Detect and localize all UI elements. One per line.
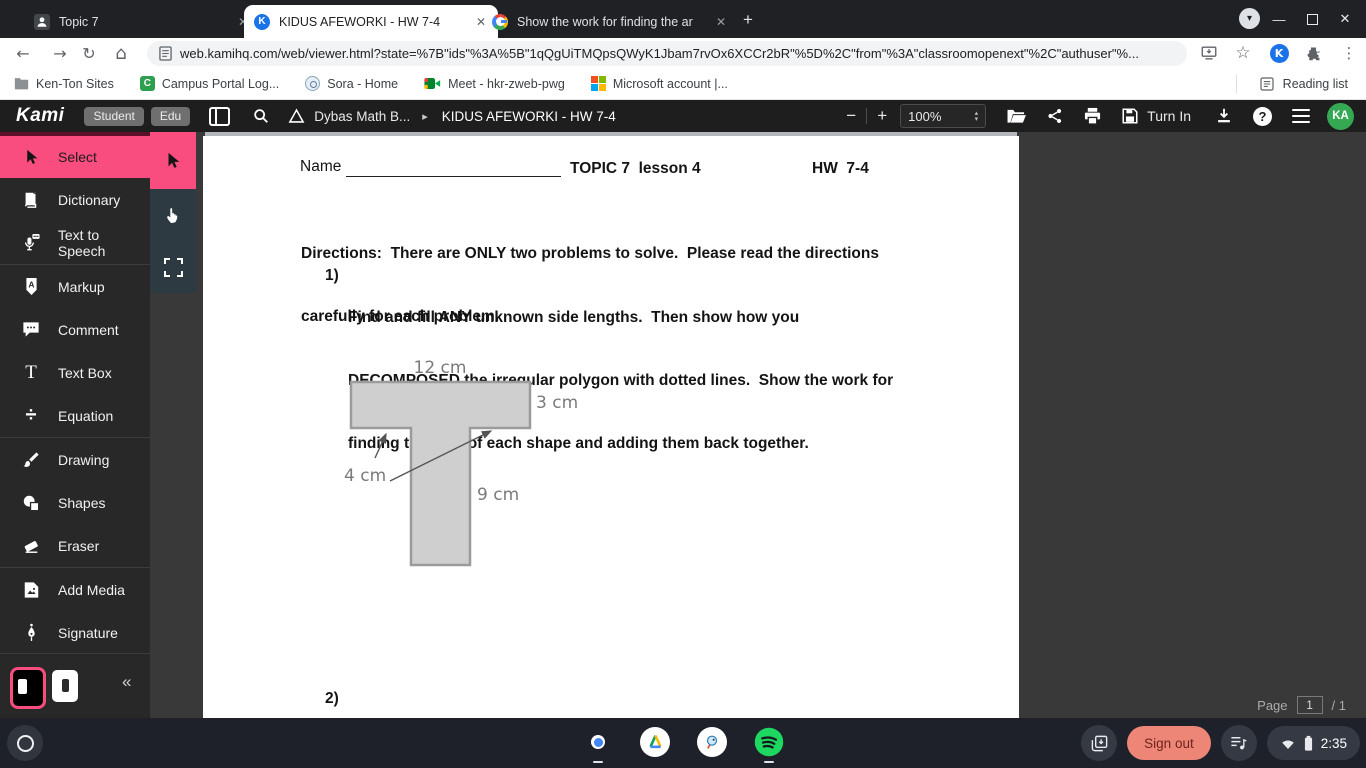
close-tab-icon[interactable]: ✕ bbox=[714, 15, 728, 29]
account-avatar[interactable]: KA bbox=[1327, 103, 1354, 130]
extensions-puzzle-icon[interactable] bbox=[1300, 40, 1326, 66]
edu-badge: Edu bbox=[151, 107, 190, 126]
page-total: / 1 bbox=[1332, 698, 1346, 713]
document-title: KIDUS AFEWORKI - HW 7-4 bbox=[442, 109, 616, 124]
shapes-icon bbox=[20, 494, 42, 512]
text-box-icon: T bbox=[20, 362, 42, 384]
comment-icon bbox=[20, 321, 42, 338]
svg-text:A: A bbox=[28, 279, 34, 289]
search-icon bbox=[252, 107, 270, 125]
tab-title: KIDUS AFEWORKI - HW 7-4 bbox=[279, 15, 465, 29]
spotify-icon bbox=[754, 727, 784, 757]
save-icon bbox=[1121, 107, 1139, 125]
signature-icon bbox=[20, 623, 42, 642]
bookmarks-bar: Ken-Ton Sites C Campus Portal Log... Sor… bbox=[0, 68, 1366, 100]
tool-drawing[interactable]: Drawing bbox=[0, 437, 150, 481]
open-file-button[interactable] bbox=[1006, 108, 1027, 125]
download-button[interactable] bbox=[1215, 107, 1233, 125]
tool-equation[interactable]: ÷ Equation bbox=[0, 394, 150, 437]
folder-open-icon bbox=[1006, 108, 1027, 125]
kami-extension-icon[interactable]: K bbox=[1266, 40, 1292, 66]
close-window-button[interactable]: ✕ bbox=[1334, 9, 1356, 29]
forward-button[interactable]: → bbox=[47, 40, 73, 66]
print-icon bbox=[1083, 107, 1102, 125]
brush-icon bbox=[20, 451, 42, 469]
bookmark-star-icon[interactable]: ☆ bbox=[1230, 40, 1256, 66]
tab-kidus-afeworki[interactable]: K KIDUS AFEWORKI - HW 7-4 ✕ bbox=[244, 5, 498, 38]
sidebar-footer: « bbox=[0, 653, 150, 718]
student-badge: Student bbox=[84, 107, 143, 126]
hw-heading: HW 7-4 bbox=[812, 158, 869, 179]
running-indicator bbox=[764, 761, 774, 764]
viewer-area: Name TOPIC 7 lesson 4 HW 7-4 Directions:… bbox=[0, 136, 1366, 718]
subtool-pan-hand[interactable] bbox=[150, 189, 196, 241]
light-theme-swatch[interactable] bbox=[52, 670, 78, 702]
cursor-icon bbox=[20, 148, 42, 167]
eraser-icon bbox=[20, 537, 42, 554]
hand-icon bbox=[164, 205, 182, 225]
zoom-level-select[interactable]: 100% ▴▾ bbox=[900, 104, 986, 128]
address-bar[interactable]: web.kamihq.com/web/viewer.html?state=%7B… bbox=[147, 41, 1187, 66]
menu-icon bbox=[1292, 109, 1310, 123]
screen-capture-button[interactable] bbox=[1081, 725, 1117, 761]
shelf-mascot-app[interactable] bbox=[697, 727, 727, 757]
zoom-out-button[interactable]: − bbox=[846, 106, 856, 126]
problem-2-number: 2) bbox=[325, 688, 339, 709]
shelf-spotify-app[interactable] bbox=[754, 727, 784, 757]
download-icon bbox=[1215, 107, 1233, 125]
problem-2-text: Show the work for finding the area of ea… bbox=[348, 688, 898, 718]
tool-add-media[interactable]: Add Media bbox=[0, 567, 150, 611]
dim-stem-label: 9 cm bbox=[477, 485, 519, 505]
browser-menu-icon[interactable]: ⋮ bbox=[1336, 40, 1362, 66]
battery-icon bbox=[1303, 735, 1314, 752]
tool-select[interactable]: Select bbox=[0, 136, 150, 178]
select-tool-flyout bbox=[150, 132, 196, 293]
tool-text-box[interactable]: T Text Box bbox=[0, 351, 150, 394]
dim-left-label: 4 cm bbox=[344, 466, 386, 486]
subtool-arrow[interactable] bbox=[150, 132, 196, 189]
kami-favicon-icon: K bbox=[254, 14, 270, 30]
tab-search-button[interactable]: ▾ bbox=[1239, 8, 1260, 29]
kami-menu-button[interactable] bbox=[1292, 109, 1310, 123]
add-media-icon bbox=[20, 581, 42, 599]
divider bbox=[866, 108, 867, 124]
maximize-button[interactable] bbox=[1301, 9, 1323, 29]
help-button[interactable]: ? bbox=[1253, 107, 1272, 126]
kami-logo[interactable]: Kami bbox=[16, 105, 64, 127]
stepper-icon: ▴▾ bbox=[975, 110, 979, 122]
zoom-in-button[interactable]: + bbox=[877, 106, 887, 126]
page-icon bbox=[159, 46, 172, 61]
wifi-icon bbox=[1280, 736, 1296, 750]
bookmark-sora[interactable]: Sora - Home bbox=[305, 76, 398, 91]
kami-toolbar: Kami Student Edu Dybas Math B... ▸ KIDUS… bbox=[0, 100, 1366, 132]
shelf-chrome-app[interactable] bbox=[583, 727, 613, 757]
tool-dictionary[interactable]: Dictionary bbox=[0, 178, 150, 221]
home-button[interactable]: ⌂ bbox=[108, 40, 134, 66]
help-icon: ? bbox=[1253, 107, 1272, 126]
shelf-drive-app[interactable] bbox=[640, 727, 670, 757]
folder-icon bbox=[14, 77, 29, 90]
chromeos-shelf: Sign out 2:35 bbox=[0, 718, 1366, 768]
drive-icon bbox=[288, 108, 305, 124]
caret-down-icon: ▾ bbox=[1247, 13, 1252, 24]
tab-title: Show the work for finding the ar bbox=[517, 15, 705, 29]
sign-out-button[interactable]: Sign out bbox=[1127, 726, 1211, 760]
breadcrumb-arrow-icon: ▸ bbox=[422, 110, 428, 123]
book-icon bbox=[20, 191, 42, 209]
tool-eraser[interactable]: Eraser bbox=[0, 524, 150, 567]
bookmark-campus-portal[interactable]: C Campus Portal Log... bbox=[140, 76, 279, 91]
shelf-apps bbox=[583, 727, 784, 757]
meet-icon bbox=[424, 77, 441, 90]
page-label: Page bbox=[1257, 698, 1287, 713]
chromeos-screen: Topic 7 ✕ K KIDUS AFEWORKI - HW 7-4 ✕ Sh… bbox=[0, 0, 1366, 768]
split-view-icon bbox=[209, 107, 230, 126]
clock: 2:35 bbox=[1321, 736, 1347, 751]
tool-markup[interactable]: A Markup bbox=[0, 264, 150, 308]
print-button[interactable] bbox=[1083, 107, 1102, 125]
launcher-button[interactable] bbox=[7, 725, 43, 761]
url-text: web.kamihq.com/web/viewer.html?state=%7B… bbox=[180, 46, 1175, 61]
new-tab-button[interactable]: + bbox=[736, 8, 760, 32]
search-button[interactable] bbox=[252, 107, 270, 125]
browser-toolbar: ← → ↻ ⌂ web.kamihq.com/web/viewer.html?s… bbox=[0, 38, 1366, 68]
tool-comment[interactable]: Comment bbox=[0, 308, 150, 351]
drive-app-icon bbox=[640, 727, 670, 757]
tool-text-to-speech[interactable]: Text to Speech bbox=[0, 221, 150, 264]
tab-title: Topic 7 bbox=[59, 15, 227, 29]
breadcrumb[interactable]: Dybas Math B... bbox=[314, 109, 410, 124]
collapse-sidebar-button[interactable]: « bbox=[122, 672, 131, 692]
sora-icon bbox=[305, 76, 320, 91]
running-indicator bbox=[593, 761, 603, 764]
reading-list-icon bbox=[1259, 76, 1275, 92]
zoom-value: 100% bbox=[908, 109, 941, 124]
tab-strip: Topic 7 ✕ K KIDUS AFEWORKI - HW 7-4 ✕ Sh… bbox=[0, 0, 1366, 38]
dark-theme-swatch[interactable] bbox=[10, 667, 46, 709]
bookmark-microsoft[interactable]: Microsoft account |... bbox=[591, 76, 728, 91]
problem-1-number: 1) bbox=[325, 265, 339, 286]
dim-top-label: 12 cm bbox=[404, 358, 476, 378]
reload-button[interactable]: ↻ bbox=[76, 40, 102, 66]
kami-tool-sidebar: Select Dictionary Text to Speech A Marku… bbox=[0, 136, 150, 718]
tool-shapes[interactable]: Shapes bbox=[0, 481, 150, 524]
reading-list-button[interactable]: Reading list bbox=[1236, 75, 1366, 93]
launcher-icon bbox=[17, 735, 34, 752]
maximize-icon bbox=[1307, 14, 1318, 25]
name-label: Name bbox=[300, 158, 341, 176]
bookmark-ken-ton-sites[interactable]: Ken-Ton Sites bbox=[14, 77, 114, 91]
shelf-status-cluster: Sign out 2:35 bbox=[1081, 725, 1360, 761]
dim-right-label: 3 cm bbox=[536, 393, 578, 413]
google-favicon-icon bbox=[492, 14, 508, 30]
campus-portal-icon: C bbox=[140, 76, 155, 91]
bookmark-meet[interactable]: Meet - hkr-zweb-pwg bbox=[424, 77, 565, 91]
split-view-button[interactable] bbox=[209, 107, 230, 126]
install-icon[interactable] bbox=[1196, 40, 1222, 66]
tab-show-the-work[interactable]: Show the work for finding the ar ✕ bbox=[482, 5, 738, 38]
text-to-speech-icon bbox=[20, 233, 42, 252]
minimize-button[interactable]: — bbox=[1268, 9, 1290, 29]
subtool-area-select[interactable] bbox=[150, 241, 196, 293]
document-page: Name TOPIC 7 lesson 4 HW 7-4 Directions:… bbox=[203, 136, 1019, 718]
share-icon bbox=[1046, 107, 1064, 125]
back-button[interactable]: ← bbox=[10, 40, 36, 66]
tab-topic-7[interactable]: Topic 7 ✕ bbox=[24, 5, 260, 38]
share-button[interactable] bbox=[1046, 107, 1064, 125]
screen-capture-icon bbox=[1090, 734, 1109, 753]
marquee-icon bbox=[164, 258, 183, 277]
page-number-input[interactable]: 1 bbox=[1297, 696, 1323, 714]
media-controls-button[interactable] bbox=[1221, 725, 1257, 761]
sites-favicon-icon bbox=[34, 14, 50, 30]
equation-icon: ÷ bbox=[20, 404, 42, 427]
microsoft-icon bbox=[591, 76, 606, 91]
tool-signature[interactable]: Signature bbox=[0, 611, 150, 654]
page-indicator: Page 1 / 1 bbox=[1257, 696, 1346, 714]
turn-in-button[interactable]: Turn In bbox=[1121, 107, 1191, 125]
system-tray[interactable]: 2:35 bbox=[1267, 726, 1360, 760]
markup-icon: A bbox=[20, 277, 42, 296]
mascot-app-icon bbox=[697, 727, 727, 757]
topic-heading: TOPIC 7 lesson 4 bbox=[570, 158, 701, 179]
turn-in-label: Turn In bbox=[1147, 108, 1191, 124]
cursor-icon bbox=[164, 151, 182, 171]
media-playlist-icon bbox=[1229, 734, 1248, 752]
name-blank-line bbox=[346, 158, 561, 177]
divider bbox=[1236, 75, 1237, 93]
